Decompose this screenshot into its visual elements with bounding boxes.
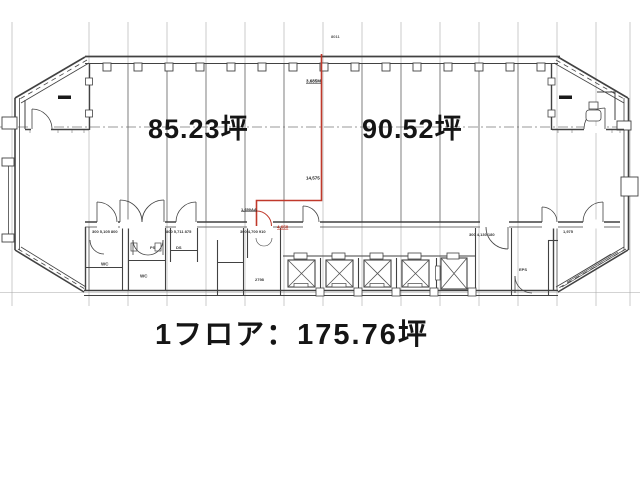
dimension-label: WC — [101, 262, 109, 267]
dimension-label: 2798 — [255, 278, 264, 282]
elevator-shafts — [288, 253, 476, 296]
dimension-label: 4,650 — [277, 225, 288, 230]
dimension-label: 800 5,711 875 — [166, 230, 191, 234]
toilet-fixture — [586, 110, 601, 121]
corner-room-left — [25, 63, 93, 133]
floorplan-canvas: 85.23坪 90.52坪 1フロア：175.76坪 80113,685M14,… — [0, 0, 640, 480]
dimension-label: EPS — [519, 268, 527, 272]
dimension-label: 8011 — [331, 35, 340, 39]
dimension-label: DS — [176, 246, 182, 250]
furniture-mark — [559, 96, 572, 100]
area-label-right: 90.52坪 — [362, 116, 463, 143]
dimension-label: 300 5,105 800 — [92, 230, 118, 234]
dimension-label: 1,650AA — [241, 208, 257, 212]
total-area-label: 1フロア：175.76坪 — [155, 321, 429, 350]
area-label-left: 85.23坪 — [148, 116, 249, 143]
dimension-label: PS — [150, 246, 155, 250]
dimension-label: 14,575 — [306, 176, 320, 181]
floorplan-drawing — [0, 0, 640, 480]
furniture-mark — [58, 96, 71, 100]
dimension-label: 3,685M — [306, 79, 321, 84]
dimension-label: 300 4,130 180 — [469, 233, 495, 237]
dimension-label: 300 4,700 910 — [240, 230, 266, 234]
dimension-label: WC — [140, 274, 148, 279]
stair — [562, 250, 624, 287]
service-core — [85, 200, 624, 296]
dimension-label: 1,975 — [563, 230, 573, 234]
